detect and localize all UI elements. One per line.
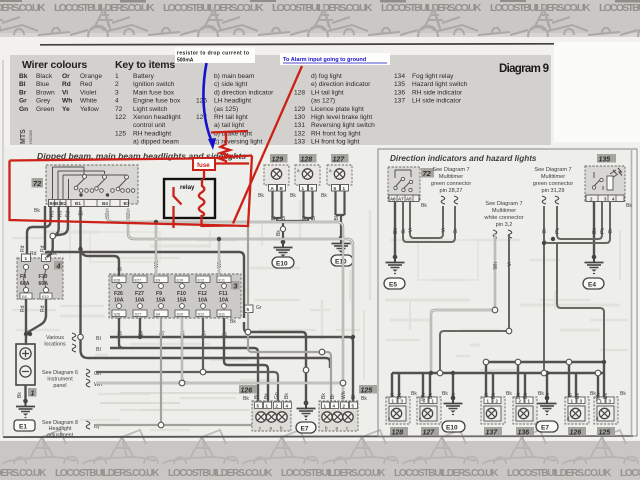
svg-text:72: 72: [115, 106, 123, 113]
svg-text:LH side indicator: LH side indicator: [412, 98, 462, 105]
svg-text:Rd: Rd: [62, 81, 71, 88]
svg-text:c) side light: c) side light: [214, 81, 248, 88]
svg-text:a) dipped beam: a) dipped beam: [133, 139, 179, 146]
svg-text:Ignition switch: Ignition switch: [133, 81, 175, 88]
svg-text:128: 128: [294, 89, 305, 96]
svg-text:Ye: Ye: [62, 106, 70, 113]
svg-text:Or: Or: [62, 73, 70, 80]
svg-text:136: 136: [394, 89, 405, 96]
svg-text:LOCOSTBUILDERS.CO.UK: LOCOSTBUILDERS.CO.UK: [620, 468, 640, 479]
svg-text:To Alarm input going to ground: To Alarm input going to ground: [283, 57, 367, 63]
svg-text:Main fuse box: Main fuse box: [133, 89, 175, 96]
svg-text:b) main beam: b) main beam: [214, 73, 255, 80]
svg-text:129: 129: [294, 106, 305, 113]
svg-text:Blue: Blue: [36, 81, 50, 88]
svg-text:RH side indicator: RH side indicator: [412, 89, 463, 96]
svg-text:Battery: Battery: [133, 73, 155, 80]
svg-text:LOCOSTBUILDERS.CO.UK: LOCOSTBUILDERS.CO.UK: [394, 468, 499, 479]
svg-text:135: 135: [394, 81, 405, 88]
svg-text:MTS: MTS: [20, 129, 27, 144]
svg-text:Hazard light switch: Hazard light switch: [412, 81, 468, 88]
svg-text:d) fog light: d) fog light: [311, 73, 342, 80]
svg-text:Licence plate light: Licence plate light: [311, 106, 364, 113]
svg-text:LOCOSTBUILDERS.CO.UK: LOCOSTBUILDERS.CO.UK: [0, 2, 46, 14]
svg-text:Wirer colours: Wirer colours: [22, 59, 87, 71]
svg-text:d) direction indicator: d) direction indicator: [214, 89, 274, 96]
svg-text:Bk: Bk: [19, 73, 28, 80]
svg-text:LH tail light: LH tail light: [311, 89, 344, 96]
svg-text:122: 122: [115, 114, 126, 121]
svg-text:H32986: H32986: [28, 129, 33, 144]
svg-text:fuse: fuse: [197, 162, 210, 169]
svg-text:Fog light relay: Fog light relay: [412, 73, 454, 80]
svg-text:2: 2: [115, 81, 119, 88]
svg-text:Diagram 9: Diagram 9: [499, 63, 549, 75]
svg-text:a) tail light: a) tail light: [214, 122, 244, 129]
svg-text:Bl: Bl: [19, 81, 26, 88]
svg-text:500mA: 500mA: [177, 58, 194, 64]
svg-text:Gr: Gr: [19, 98, 27, 105]
svg-text:Green: Green: [36, 106, 55, 113]
svg-text:Engine fuse box: Engine fuse box: [133, 98, 181, 105]
svg-text:133: 133: [294, 139, 305, 146]
svg-text:RH tail light: RH tail light: [214, 114, 248, 121]
svg-text:125: 125: [115, 130, 126, 137]
svg-text:e) direction indicator: e) direction indicator: [311, 81, 371, 88]
svg-text:control unit: control unit: [133, 122, 165, 129]
svg-text:Red: Red: [80, 81, 92, 88]
svg-text:3: 3: [115, 89, 119, 96]
svg-text:resistor to drop current to: resistor to drop current to: [177, 51, 249, 57]
svg-text:(as 127): (as 127): [311, 98, 335, 105]
svg-text:Brown: Brown: [36, 89, 55, 96]
svg-text:Wh: Wh: [62, 98, 72, 105]
svg-text:Xenon headlight: Xenon headlight: [133, 114, 181, 121]
svg-text:LH headlight: LH headlight: [214, 98, 251, 105]
svg-text:Br: Br: [19, 89, 27, 96]
svg-text:137: 137: [394, 98, 405, 105]
svg-text:Vi: Vi: [62, 89, 68, 96]
svg-text:(as 125): (as 125): [214, 106, 238, 113]
svg-text:LOCOSTBUILDERS.CO.UK: LOCOSTBUILDERS.CO.UK: [599, 2, 640, 14]
svg-text:c) reversing light: c) reversing light: [214, 139, 263, 146]
svg-text:LOCOSTBUILDERS.CO.UK: LOCOSTBUILDERS.CO.UK: [168, 468, 273, 479]
svg-text:High level brake light: High level brake light: [311, 114, 372, 121]
svg-text:4: 4: [115, 98, 119, 105]
svg-text:126: 126: [196, 98, 207, 105]
svg-text:RH headlight: RH headlight: [133, 130, 171, 137]
svg-text:LOCOSTBUILDERS.CO.UK: LOCOSTBUILDERS.CO.UK: [0, 468, 47, 479]
svg-text:Light switch: Light switch: [133, 106, 168, 113]
svg-text:Grey: Grey: [36, 98, 51, 105]
svg-text:131: 131: [294, 122, 305, 129]
svg-text:relay: relay: [180, 184, 195, 191]
svg-text:134: 134: [394, 73, 405, 80]
svg-text:132: 132: [294, 130, 305, 137]
svg-text:Reversing light switch: Reversing light switch: [311, 122, 375, 129]
svg-text:Orange: Orange: [80, 73, 102, 80]
svg-text:White: White: [80, 98, 97, 105]
svg-text:130: 130: [294, 114, 305, 121]
svg-text:1: 1: [115, 73, 119, 80]
svg-text:Gn: Gn: [19, 106, 28, 113]
svg-text:LOCOSTBUILDERS.CO.UK: LOCOSTBUILDERS.CO.UK: [55, 468, 160, 479]
svg-text:LH front fog light: LH front fog light: [311, 139, 360, 146]
svg-text:Key to items: Key to items: [115, 59, 175, 71]
svg-text:Black: Black: [36, 73, 53, 80]
svg-text:LOCOSTBUILDERS.CO.UK: LOCOSTBUILDERS.CO.UK: [507, 468, 612, 479]
svg-text:LOCOSTBUILDERS.CO.UK: LOCOSTBUILDERS.CO.UK: [490, 2, 591, 14]
svg-text:RH front fog light: RH front fog light: [311, 130, 361, 137]
svg-text:LOCOSTBUILDERS.CO.UK: LOCOSTBUILDERS.CO.UK: [281, 468, 386, 479]
svg-text:Violet: Violet: [80, 89, 97, 96]
svg-text:Yellow: Yellow: [80, 106, 99, 113]
